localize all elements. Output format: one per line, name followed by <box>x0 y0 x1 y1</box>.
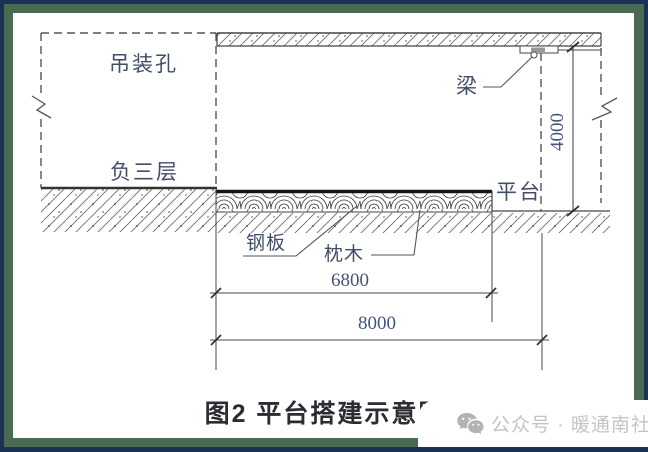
ceiling-slab <box>217 33 601 46</box>
wechat-icon <box>456 411 484 437</box>
label-hoisting-hole: 吊装孔 <box>109 53 178 75</box>
dimension-line-8000 <box>210 335 549 345</box>
ground-hatch-left <box>41 189 217 232</box>
watermark-text: 公众号 · 暖通南社 <box>491 410 648 437</box>
screenshot-frame: 吊装孔 负三层 梁 平台 钢板 枕木 6800 8000 4000 图2 平台搭… <box>0 0 648 452</box>
dimension-text-6800: 6800 <box>320 270 380 292</box>
break-symbol-right <box>592 98 617 120</box>
label-sleeper: 枕木 <box>324 245 364 265</box>
ground-hatch-right <box>217 211 610 233</box>
beam-detail <box>483 46 601 87</box>
watermark: 公众号 · 暖通南社 <box>418 400 648 447</box>
break-symbol-left <box>32 96 51 118</box>
label-beam: 梁 <box>456 75 479 97</box>
label-steel-plate: 钢板 <box>246 234 286 254</box>
dimension-text-4000: 4000 <box>547 109 569 155</box>
dimension-text-8000: 8000 <box>346 313 408 335</box>
label-basement-level: 负三层 <box>110 161 179 183</box>
label-platform: 平台 <box>496 181 542 203</box>
platform-diagram <box>0 0 648 452</box>
